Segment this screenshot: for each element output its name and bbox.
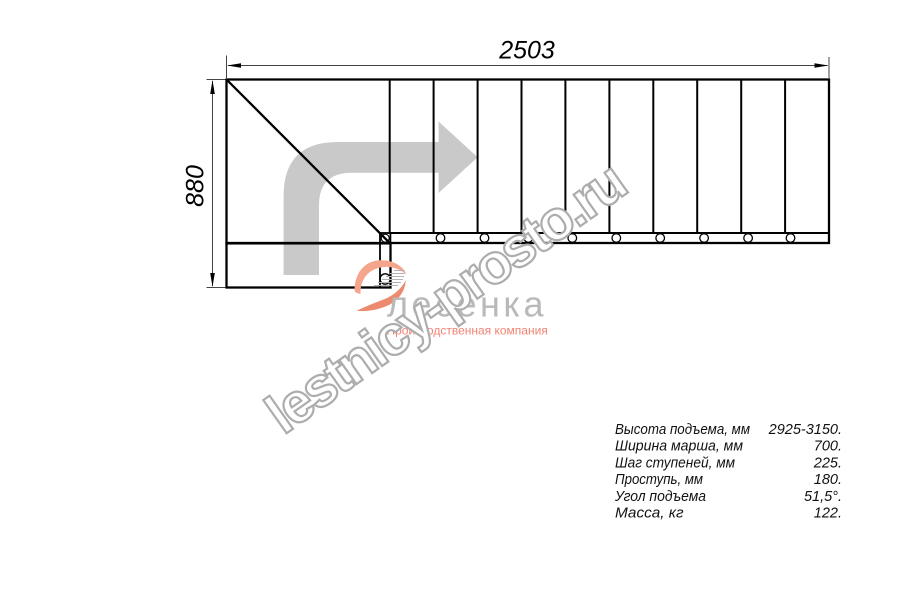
- svg-text:700.: 700.: [814, 439, 842, 455]
- svg-text:Шаг ступеней, мм: Шаг ступеней, мм: [615, 455, 735, 471]
- svg-text:2503: 2503: [498, 37, 555, 65]
- svg-text:225.: 225.: [813, 455, 842, 471]
- svg-text:880: 880: [182, 165, 210, 207]
- svg-text:Проступь, мм: Проступь, мм: [615, 472, 703, 488]
- svg-text:2925-3150.: 2925-3150.: [768, 422, 842, 438]
- svg-text:Масса, кг: Масса, кг: [615, 506, 684, 522]
- svg-text:51,5°.: 51,5°.: [804, 489, 842, 505]
- svg-text:Ширина марша, мм: Ширина марша, мм: [615, 439, 743, 455]
- svg-text:122.: 122.: [814, 506, 842, 522]
- svg-text:180.: 180.: [814, 472, 842, 488]
- svg-text:Угол подъема: Угол подъема: [614, 489, 706, 505]
- svg-text:Высота подъема, мм: Высота подъема, мм: [615, 422, 750, 438]
